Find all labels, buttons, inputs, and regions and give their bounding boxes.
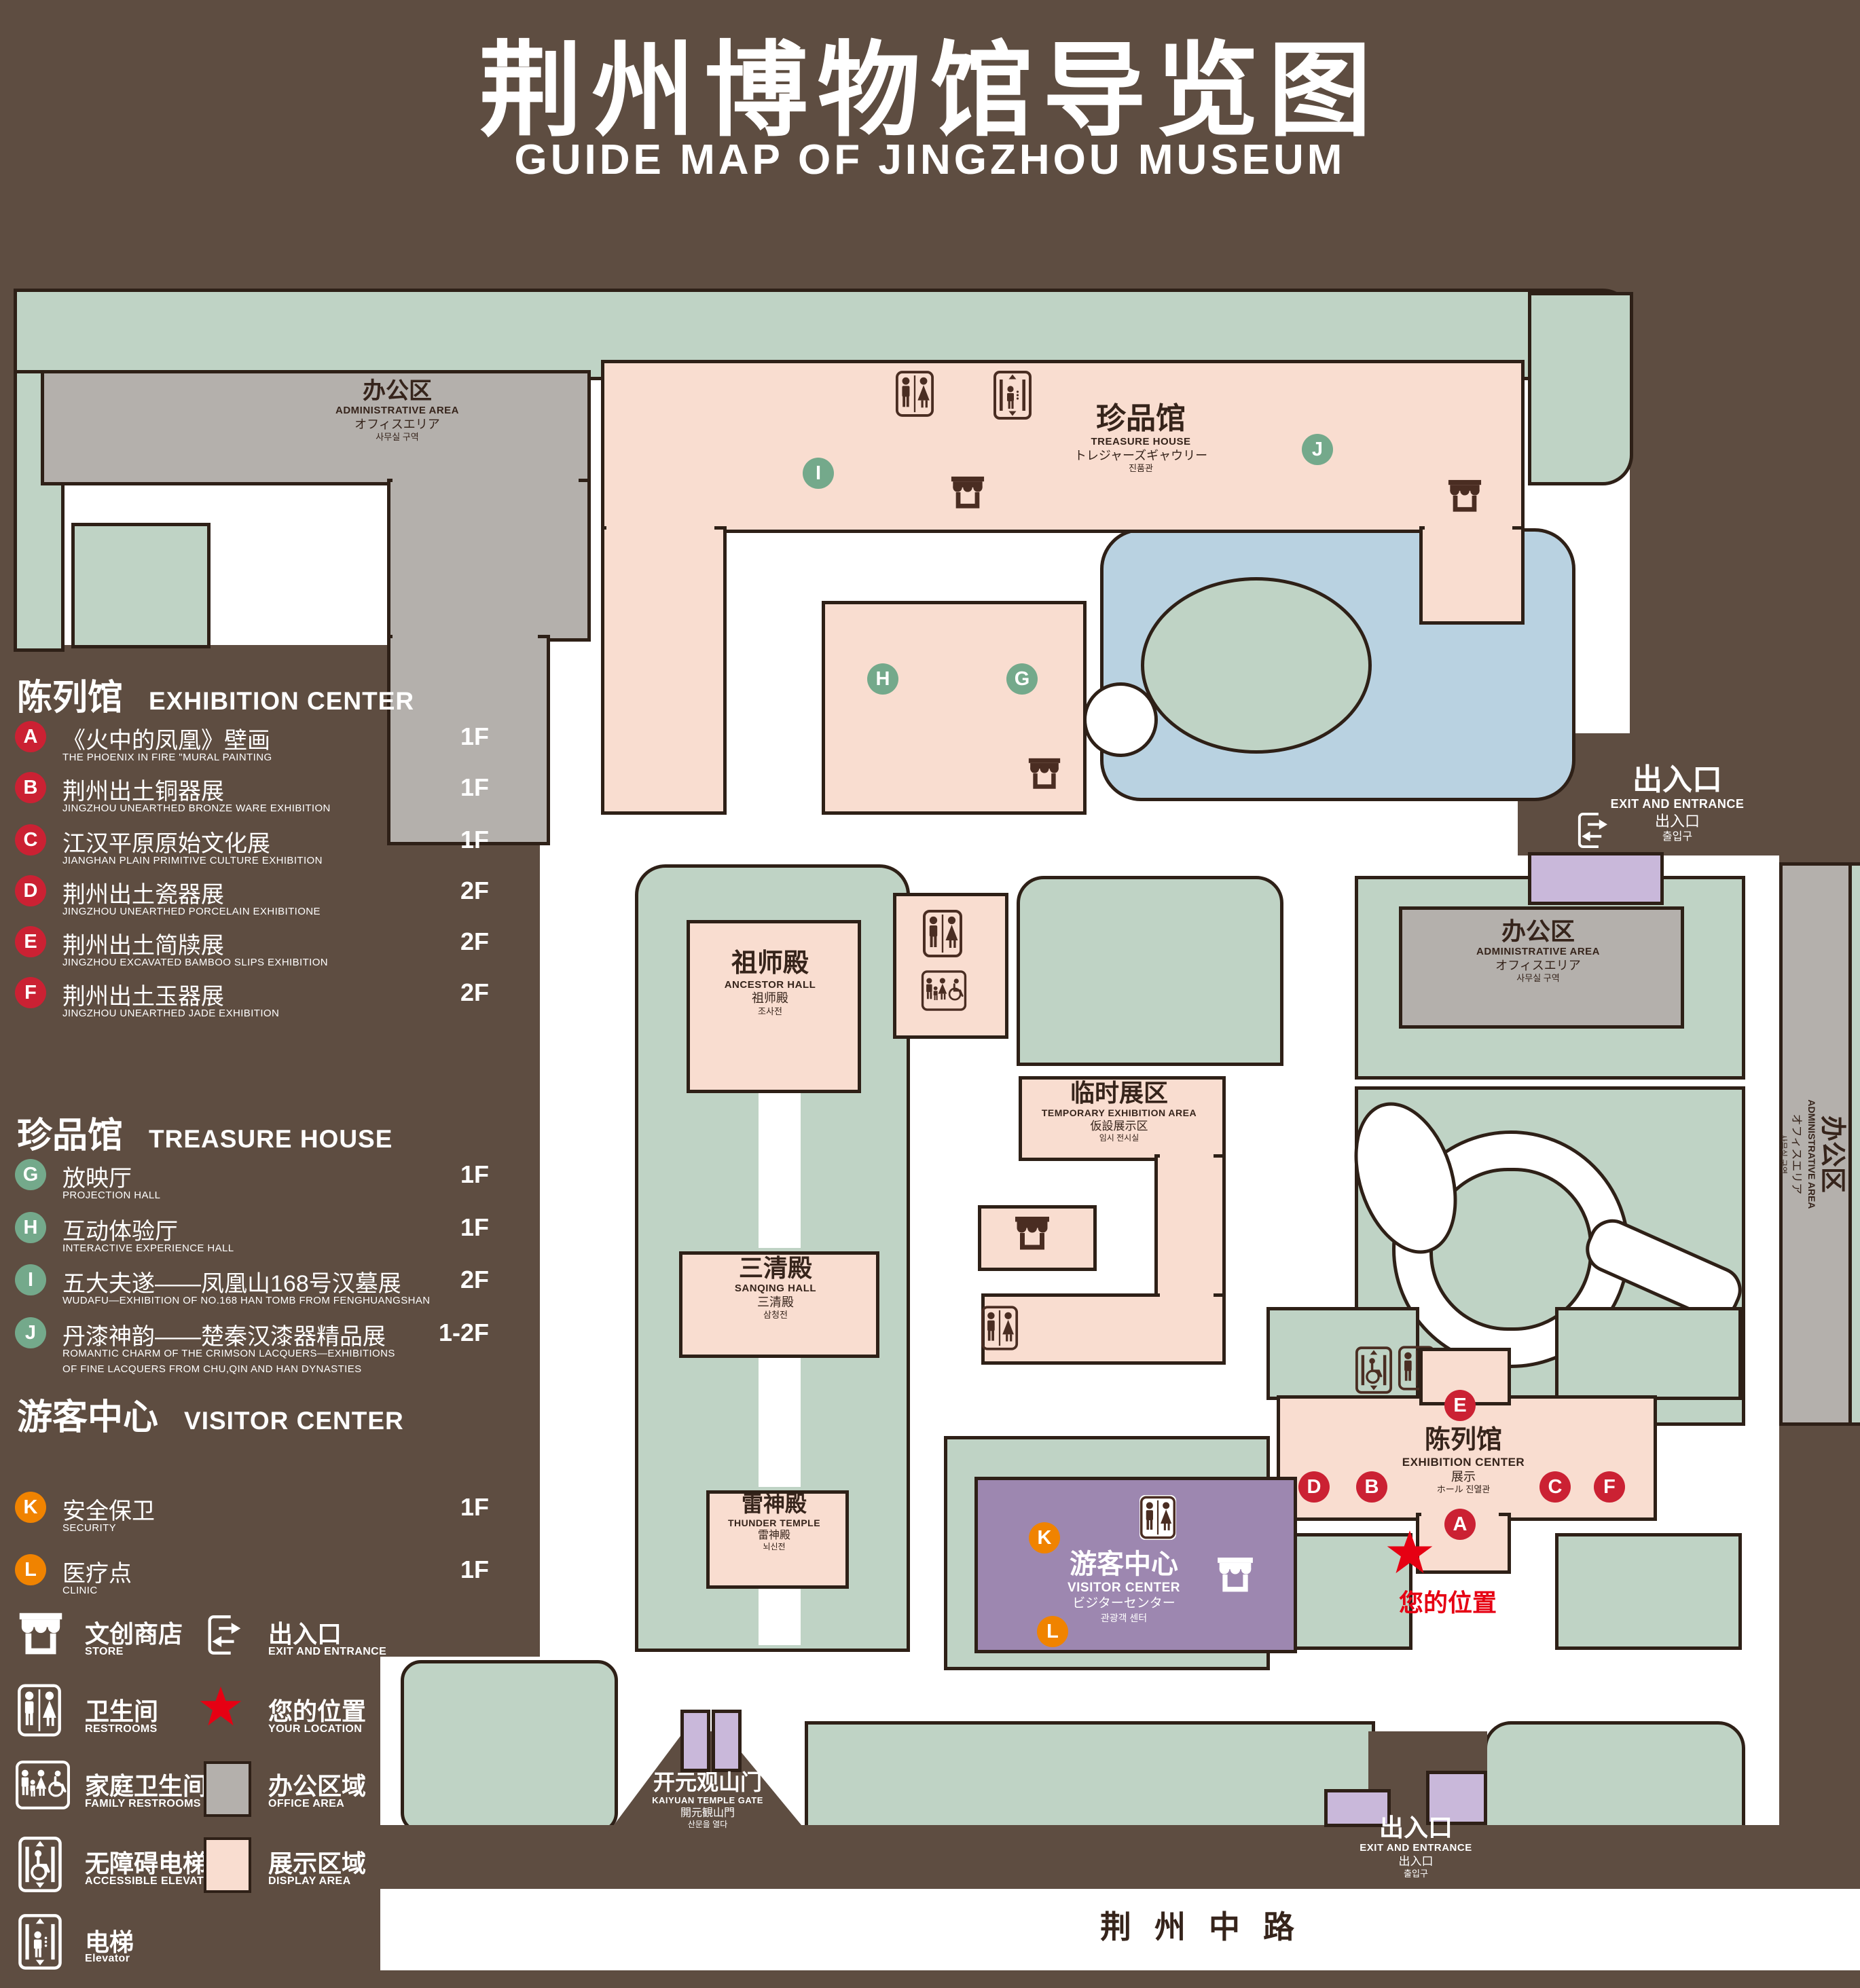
gate-pillar-left <box>680 1710 710 1772</box>
legend-symbol-elevator-en: Elevator <box>85 1953 130 1965</box>
your-location-star-icon <box>198 1685 243 1727</box>
elevator-icon <box>993 370 1032 420</box>
legend-item-c-en: JIANGHAN PLAIN PRIMITIVE CULTURE EXHIBIT… <box>62 855 323 866</box>
legend-item-h-floor: 1F <box>414 1213 489 1242</box>
legend-item-e-floor: 2F <box>414 927 489 956</box>
building-treasure-left-wing <box>601 526 727 815</box>
legend-item-h-en: INTERACTIVE EXPERIENCE HALL <box>62 1242 234 1254</box>
temple-path-2 <box>759 1355 801 1487</box>
legend-item-k-floor: 1F <box>414 1493 489 1522</box>
legend-item-f-en: JINGZHOU UNEARTHED JADE EXHIBITION <box>62 1008 279 1019</box>
legend-item-k-en: SECURITY <box>62 1522 116 1534</box>
legend-symbol-restrooms-en: RESTROOMS <box>85 1723 158 1735</box>
map-marker-j: J <box>1302 434 1333 465</box>
map-marker-a: A <box>1444 1509 1476 1540</box>
legend-symbol-store-zh: 文创商店 <box>85 1615 183 1650</box>
treasure-seam-patch-1 <box>606 523 714 531</box>
legend-section-treasure-house: 珍品馆TREASURE HOUSE <box>17 1107 393 1158</box>
store-icon <box>1216 1556 1255 1594</box>
map-marker-i: I <box>803 458 834 489</box>
exit-icon <box>1574 809 1612 851</box>
map-marker-k: K <box>1029 1522 1060 1553</box>
label-thunder-temple: 雷神殿 THUNDER TEMPLE 雷神殿 뇌신전 <box>728 1492 820 1553</box>
label-admin-top-left: 办公区 ADMINISTRATIVE AREA オフィスエリア 사무실 구역 <box>335 378 459 443</box>
label-kaiyuan-gate: 开元观山门 KAIYUAN TEMPLE GATE 開元観山門 산문을 열다 <box>652 1771 763 1830</box>
store-icon <box>17 1610 65 1658</box>
map-marker-e: E <box>1444 1390 1476 1421</box>
legend-item-j-floor: 1-2F <box>414 1319 489 1347</box>
temporary-seam-patch-1 <box>1160 1151 1214 1159</box>
green-south-center <box>805 1721 1375 1837</box>
green-exhibition-tr <box>1555 1307 1742 1400</box>
restroom-icon <box>895 370 934 418</box>
legend-marker-h: H <box>15 1212 46 1243</box>
green-seam-patch <box>1532 296 1622 369</box>
treasure-seam-patch-2 <box>1425 523 1512 531</box>
legend-marker-f: F <box>15 977 46 1008</box>
legend-item-b-zh: 荆州出土铜器展 <box>62 773 224 806</box>
temporary-seam-patch-2 <box>1160 1289 1214 1298</box>
legend-marker-b: B <box>15 772 46 803</box>
page-title: 荆州博物馆导览图 <box>0 7 1860 156</box>
legend-item-a-en: THE PHOENIX IN FIRE "MURAL PAINTING <box>62 752 272 763</box>
legend-symbol-family-zh: 家庭卫生间 <box>85 1767 207 1802</box>
legend-marker-c: C <box>15 824 46 855</box>
elevator-icon <box>17 1913 63 1970</box>
legend-item-d-floor: 2F <box>414 877 489 905</box>
green-south-left <box>401 1660 618 1833</box>
legend-marker-j: J <box>15 1317 46 1348</box>
building-admin-top-left <box>41 370 591 485</box>
legend-item-i-floor: 2F <box>414 1266 489 1294</box>
restroom-icon <box>981 1305 1019 1351</box>
legend-symbol-office-zh: 办公区域 <box>268 1767 366 1802</box>
label-admin-right: 办公区 ADMINISTRATIVE AREA オフィスエリア 사무실 구역 <box>1476 918 1600 984</box>
map-marker-d: D <box>1298 1471 1330 1503</box>
legend-section-exhibition-center: 陈列馆EXHIBITION CENTER <box>17 669 414 720</box>
pond-swirl-path <box>1083 682 1158 757</box>
label-ancestor-hall: 祖师殿 ANCESTOR HALL 祖师殿 조사전 <box>725 949 816 1018</box>
legend-item-d-zh: 荆州出土瓷器展 <box>62 876 224 909</box>
legend-marker-g: G <box>15 1159 46 1190</box>
building-treasure-house <box>601 360 1525 533</box>
admin-seam-patch-2 <box>393 631 538 640</box>
green-exhibition-br <box>1555 1533 1742 1650</box>
your-location-star-icon <box>1385 1529 1434 1575</box>
store-icon <box>949 475 986 511</box>
label-treasure-house: 珍品馆 TREASURE HOUSE トレジャーズギャウリー 진품관 <box>1074 402 1207 475</box>
legend-marker-i: I <box>15 1264 46 1295</box>
display-area-swatch <box>204 1837 251 1893</box>
legend-item-d-en: JINGZHOU UNEARTHED PORCELAIN EXHIBITIONE <box>62 906 321 917</box>
green-temporary-courtyard <box>1017 876 1283 1066</box>
building-treasure-right-tab <box>1419 526 1525 625</box>
legend-item-c-floor: 1F <box>414 826 489 854</box>
legend-item-f-floor: 2F <box>414 978 489 1007</box>
road-label: 荆州中路 <box>971 1902 1446 1947</box>
restroom-icon <box>17 1682 62 1738</box>
legend-item-e-en: JINGZHOU EXCAVATED BAMBOO SLIPS EXHIBITI… <box>62 957 328 968</box>
legend-item-l-floor: 1F <box>414 1556 489 1584</box>
legend-item-j-en: ROMANTIC CHARM OF THE CRIMSON LACQUERS—E… <box>62 1348 395 1359</box>
family-restroom-icon <box>15 1760 71 1810</box>
legend-symbol-accessible-en: ACCESSIBLE ELEVATOR <box>85 1875 221 1888</box>
legend-symbol-accessible-zh: 无障碍电梯 <box>85 1844 207 1879</box>
green-admin-pocket <box>71 523 211 648</box>
label-admin-strip: 办公区 ADMINISTRATIVE AREA オフィスエリア 사무실 구역 <box>1778 1052 1846 1256</box>
exit-icon <box>204 1610 246 1659</box>
legend-item-j-zh: 丹漆神韵——楚秦汉漆器精品展 <box>62 1318 386 1351</box>
map-marker-h: H <box>867 663 898 695</box>
map-marker-l: L <box>1037 1616 1068 1647</box>
legend-symbol-exit-en: EXIT AND ENTRANCE <box>268 1646 386 1658</box>
legend-item-j-en2: OF FINE LACQUERS FROM CHU,QIN AND HAN DY… <box>62 1363 362 1375</box>
legend-symbol-location-zh: 您的位置 <box>268 1692 366 1727</box>
label-exhibition-center: 陈列馆 EXHIBITION CENTER 展示 ホール 진열관 <box>1402 1426 1525 1496</box>
store-icon <box>1027 757 1062 791</box>
legend-item-a-zh: 《火中的凤凰》壁画 <box>62 722 270 755</box>
legend-item-g-zh: 放映厅 <box>62 1160 132 1193</box>
store-icon <box>1013 1215 1051 1252</box>
legend-symbol-exit-zh: 出入口 <box>268 1615 342 1650</box>
bottom-brown-band <box>380 1825 1860 1889</box>
legend-item-g-floor: 1F <box>414 1160 489 1189</box>
building-temporary-right <box>1154 1154 1226 1304</box>
guide-map-poster: 荆州博物馆导览图 GUIDE MAP OF JINGZHOU MUSEUM 办公… <box>0 0 1860 1988</box>
page-subtitle: GUIDE MAP OF JINGZHOU MUSEUM <box>0 136 1860 184</box>
legend-item-l-en: CLINIC <box>62 1585 98 1596</box>
legend-item-i-zh: 五大夫遂——凤凰山168号汉墓展 <box>62 1265 401 1298</box>
legend-symbol-family-en: FAMILY RESTROOMS <box>85 1798 201 1810</box>
legend-marker-e: E <box>15 926 46 957</box>
temple-path-3 <box>759 1585 801 1645</box>
pond-island <box>1141 577 1372 754</box>
map-marker-c: C <box>1539 1471 1571 1503</box>
label-exit-bottom: 出入口 EXIT AND ENTRANCE 出入口 출입구 <box>1360 1814 1472 1880</box>
legend-symbol-store-en: STORE <box>85 1646 124 1658</box>
green-exhibition-tl <box>1266 1307 1419 1400</box>
label-temporary-area: 临时展区 TEMPORARY EXHIBITION AREA 仮設展示区 임시 … <box>1042 1080 1197 1143</box>
label-sanqing-hall: 三清殿 SANQING HALL 三清殿 삼청전 <box>735 1255 816 1321</box>
map-marker-g: G <box>1006 663 1038 695</box>
map-marker-f: F <box>1594 1471 1625 1503</box>
map-marker-b: B <box>1356 1471 1387 1503</box>
family-restroom-icon <box>921 970 967 1012</box>
accessible-elevator-icon <box>1355 1346 1393 1395</box>
building-admin-top-left-arm <box>387 479 591 642</box>
legend-marker-l: L <box>15 1554 46 1585</box>
legend-symbol-office-en: OFFICE AREA <box>268 1798 344 1810</box>
legend-item-g-en: PROJECTION HALL <box>62 1190 160 1201</box>
legend-item-c-zh: 江汉平原原始文化展 <box>62 825 270 858</box>
legend-item-b-floor: 1F <box>414 773 489 802</box>
building-small-purple-midright <box>1528 852 1664 905</box>
restroom-icon <box>922 908 963 959</box>
legend-section-visitor-center: 游客中心VISITOR CENTER <box>17 1388 404 1439</box>
label-visitor-center: 游客中心 VISITOR CENTER ビジターセンター 관광객 센터 <box>1068 1549 1180 1624</box>
accessible-elevator-icon <box>17 1836 63 1893</box>
legend-symbol-display-en: DISPLAY AREA <box>268 1875 351 1888</box>
legend-item-b-en: JINGZHOU UNEARTHED BRONZE WARE EXHIBITIO… <box>62 803 331 814</box>
legend-item-h-zh: 互动体验厅 <box>62 1213 178 1246</box>
legend-symbol-restrooms-zh: 卫生间 <box>85 1692 158 1727</box>
legend-marker-a: A <box>15 721 46 752</box>
legend-item-e-zh: 荆州出土简牍展 <box>62 927 224 960</box>
legend-item-f-zh: 荆州出土玉器展 <box>62 978 224 1011</box>
legend-item-i-en: WUDAFU—EXHIBITION OF NO.168 HAN TOMB FRO… <box>62 1295 431 1306</box>
legend-symbol-location-en: YOUR LOCATION <box>268 1723 362 1735</box>
legend-symbol-display-zh: 展示区域 <box>268 1844 366 1879</box>
gate-pillar-right <box>712 1710 742 1772</box>
admin-seam-patch-1 <box>393 475 579 483</box>
office-area-swatch <box>204 1761 251 1817</box>
label-exit-mid: 出入口 EXIT AND ENTRANCE 出入口 출입구 <box>1611 763 1745 845</box>
legend-marker-d: D <box>15 875 46 906</box>
temple-path-1 <box>759 1090 801 1248</box>
legend-item-k-zh: 安全保卫 <box>62 1492 155 1526</box>
restroom-icon <box>1139 1495 1176 1540</box>
legend-item-a-floor: 1F <box>414 722 489 751</box>
legend-marker-k: K <box>15 1492 46 1523</box>
your-location-label: 您的位置 <box>1399 1583 1497 1619</box>
store-icon <box>1446 479 1483 514</box>
legend-item-l-zh: 医疗点 <box>62 1555 132 1588</box>
